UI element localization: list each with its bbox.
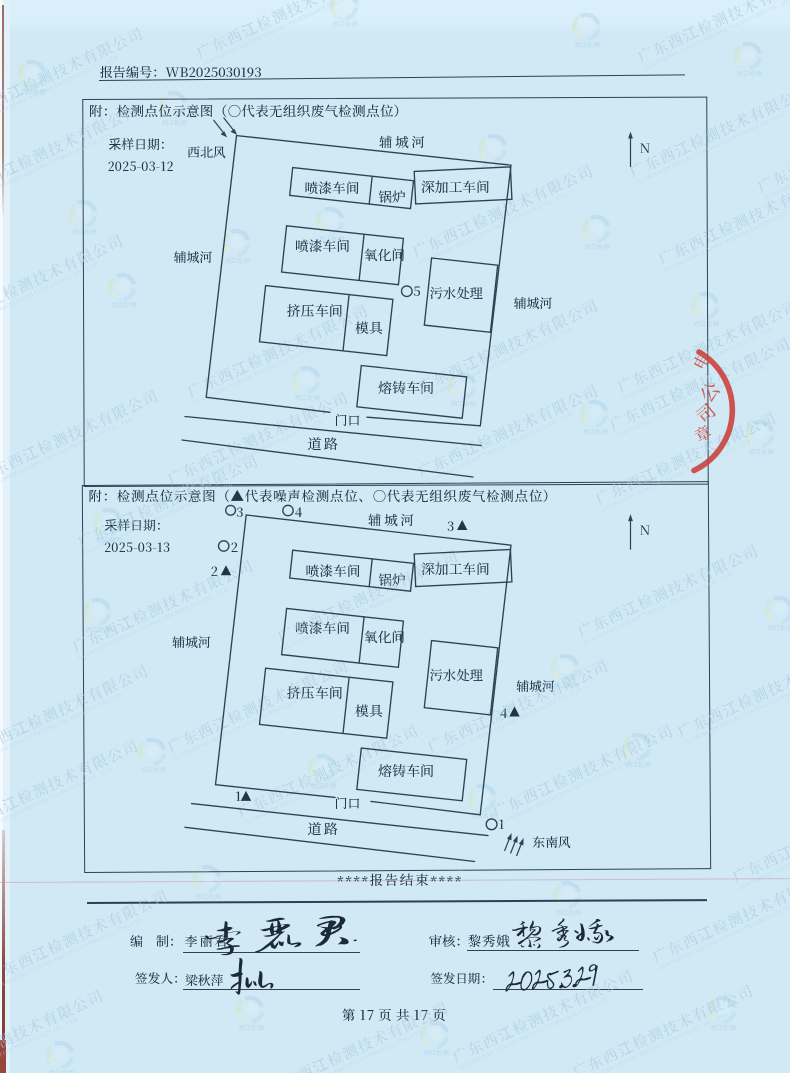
svg-text:电: 电 bbox=[686, 347, 716, 374]
